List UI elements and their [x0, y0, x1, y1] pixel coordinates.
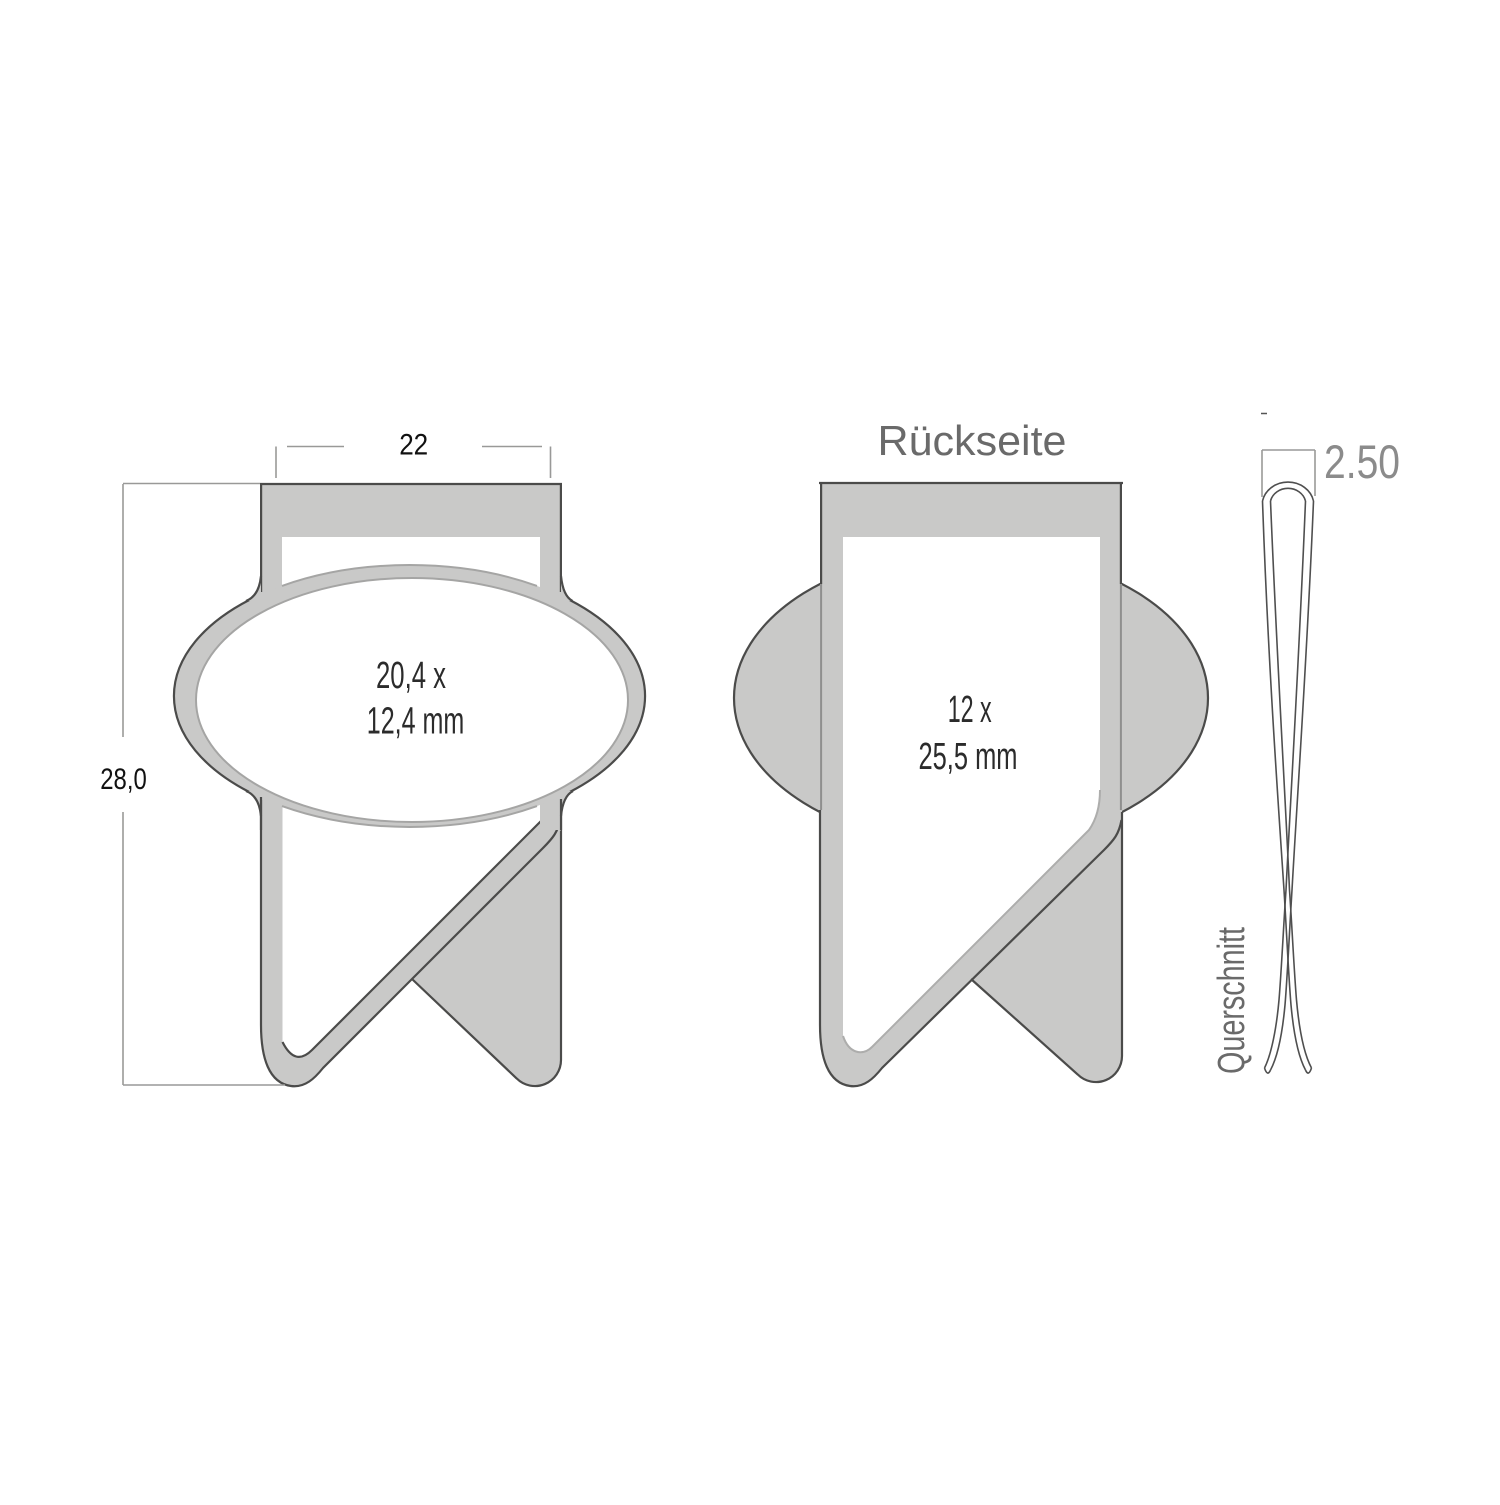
svg-text:2.50: 2.50 [1324, 435, 1400, 488]
svg-text:Querschnitt: Querschnitt [1211, 927, 1253, 1074]
svg-text:28,0: 28,0 [100, 763, 147, 796]
svg-text:20,4 x: 20,4 x [376, 655, 446, 697]
svg-text:12 x: 12 x [948, 689, 992, 731]
svg-text:Rückseite: Rückseite [878, 417, 1067, 464]
svg-text:22: 22 [399, 428, 428, 461]
svg-text:25,5 mm: 25,5 mm [919, 736, 1018, 778]
svg-text:12,4 mm: 12,4 mm [367, 701, 465, 743]
